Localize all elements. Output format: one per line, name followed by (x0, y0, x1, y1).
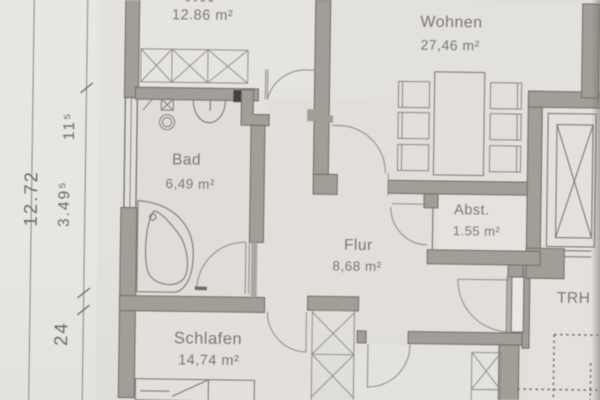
svg-text:8,68 m²: 8,68 m² (332, 258, 381, 274)
svg-text:Schlafen: Schlafen (174, 329, 242, 348)
svg-text:Wohnen: Wohnen (420, 14, 483, 32)
svg-text:Bad: Bad (172, 151, 201, 168)
svg-text:TRH: TRH (557, 290, 591, 307)
svg-text:12.72: 12.72 (20, 170, 42, 227)
svg-text:14,74 m²: 14,74 m² (178, 352, 239, 369)
svg-text:Flur: Flur (344, 237, 373, 254)
svg-text:24: 24 (50, 321, 71, 346)
svg-text:27,46 m²: 27,46 m² (420, 37, 479, 54)
svg-text:6,49 m²: 6,49 m² (165, 176, 214, 192)
svg-text:12.86 m²: 12.86 m² (172, 7, 233, 24)
svg-text:Abst.: Abst. (454, 202, 490, 218)
svg-text:1.55 m²: 1.55 m² (453, 223, 501, 239)
svg-text:3.49⁵: 3.49⁵ (56, 180, 74, 227)
svg-text:11⁵: 11⁵ (61, 111, 78, 140)
